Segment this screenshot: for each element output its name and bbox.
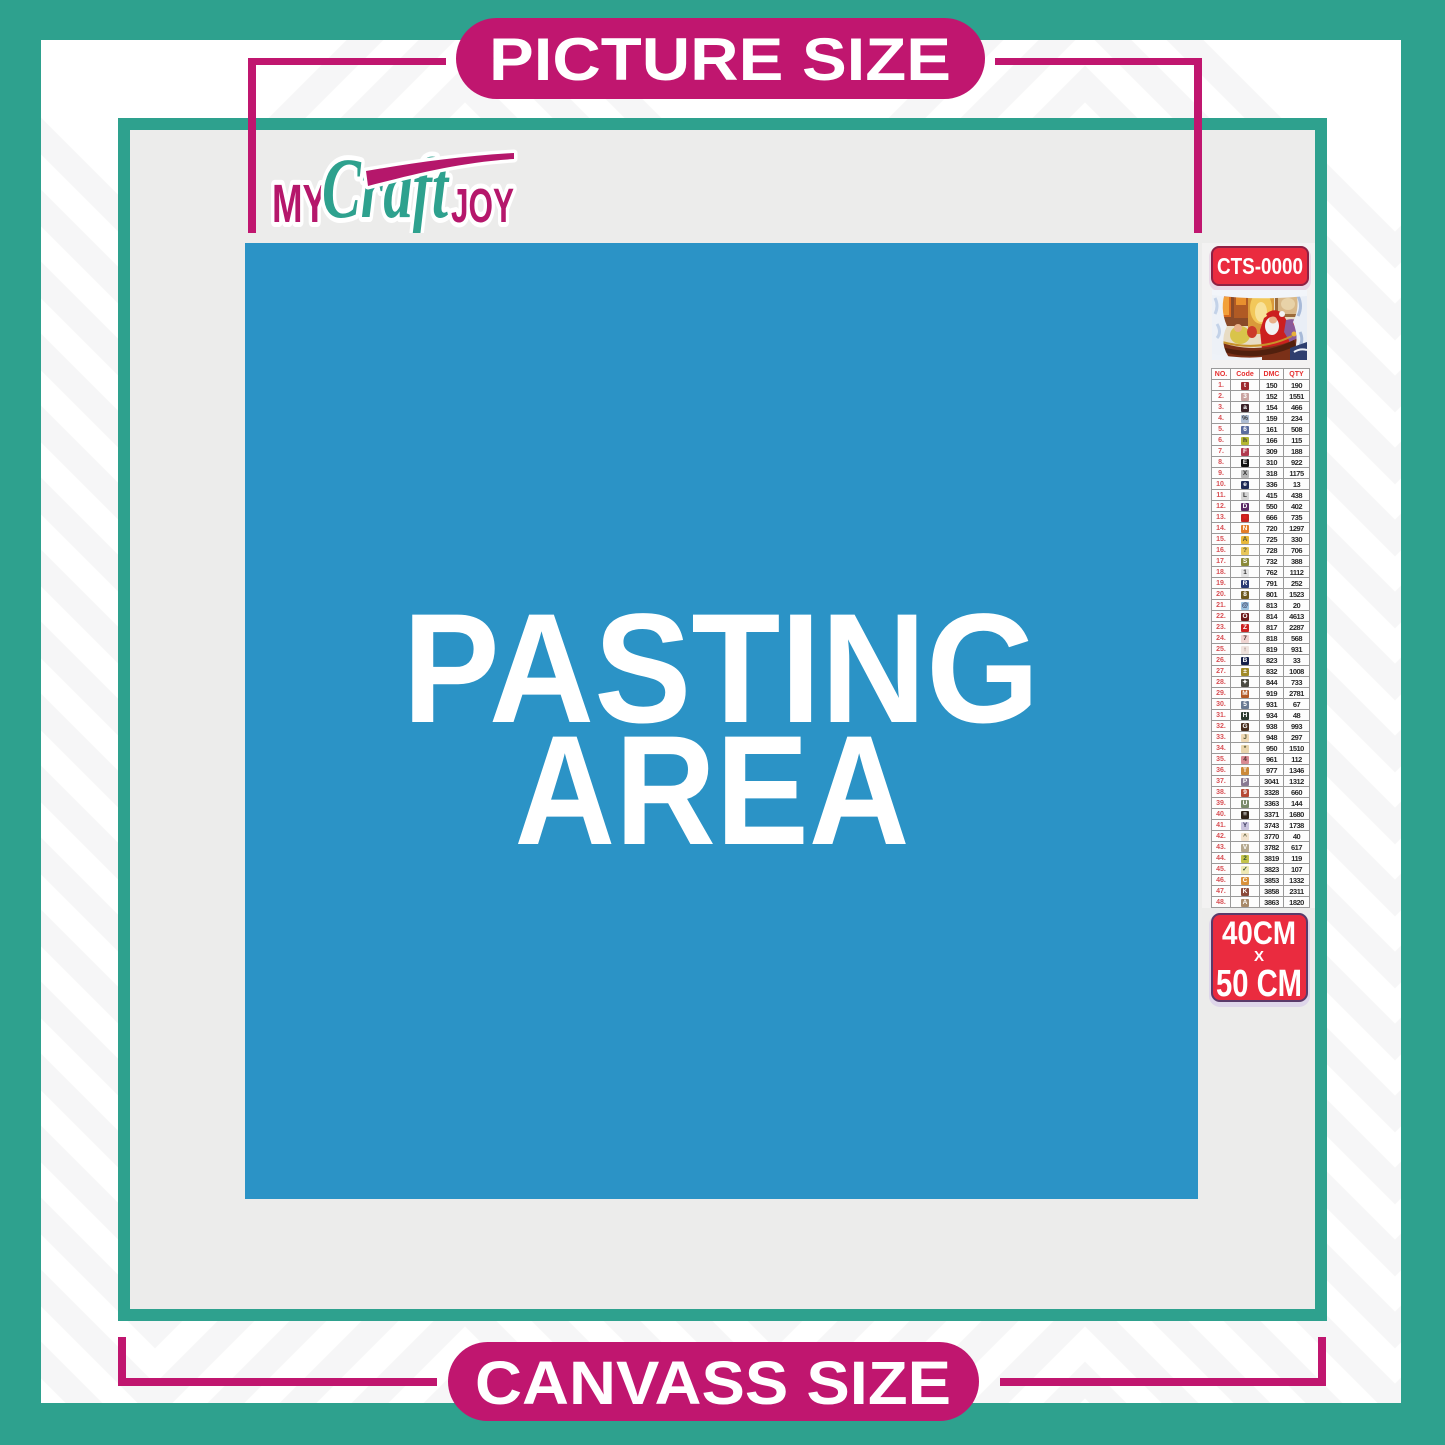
svg-text:AREA: AREA bbox=[515, 704, 910, 878]
svg-text:JOY: JOY bbox=[451, 180, 514, 233]
svg-text:50 CM: 50 CM bbox=[1216, 963, 1302, 1002]
svg-text:40CM: 40CM bbox=[1222, 915, 1296, 951]
svg-text:Craft: Craft bbox=[322, 140, 450, 233]
svg-text:MY: MY bbox=[272, 174, 327, 233]
svg-text:CTS-0000: CTS-0000 bbox=[1217, 253, 1303, 279]
svg-text:CANVASS SIZE: CANVASS SIZE bbox=[475, 1349, 951, 1417]
svg-text:PICTURE SIZE: PICTURE SIZE bbox=[489, 26, 951, 93]
